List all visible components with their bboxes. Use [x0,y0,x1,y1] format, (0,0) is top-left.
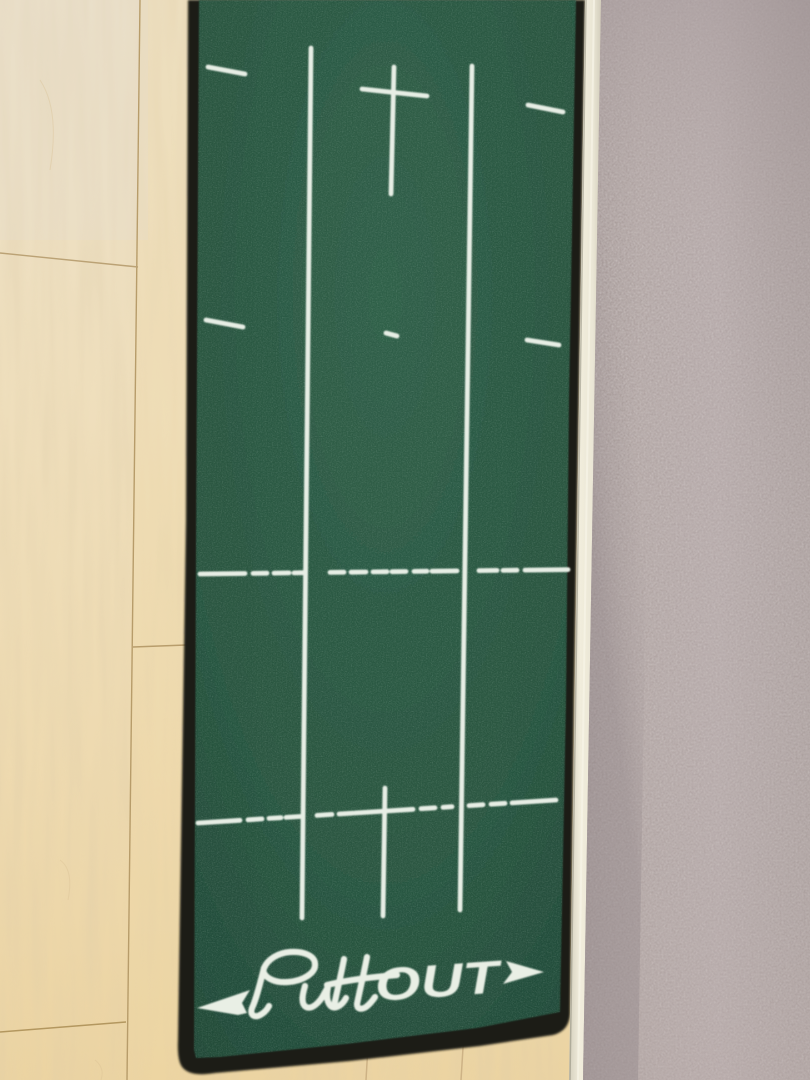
svg-text:OUT: OUT [373,950,505,1011]
